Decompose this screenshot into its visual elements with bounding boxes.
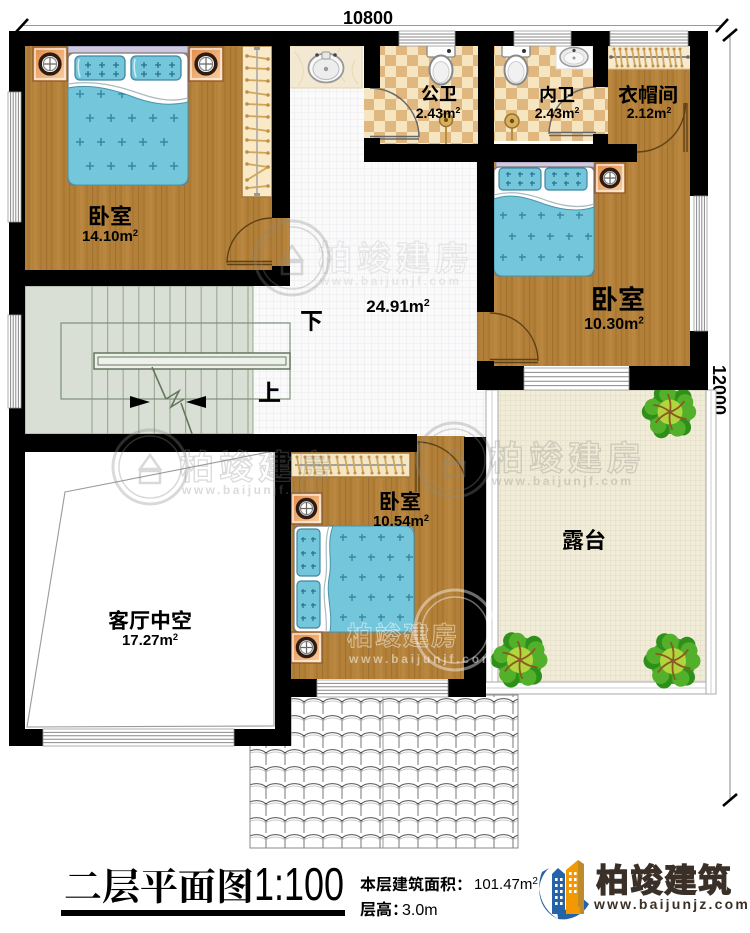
svg-text:10.54m2: 10.54m2 bbox=[373, 513, 429, 530]
svg-text:24.91m2: 24.91m2 bbox=[366, 297, 430, 316]
svg-text:14.10m2: 14.10m2 bbox=[82, 228, 138, 245]
svg-text:101.47m2: 101.47m2 bbox=[474, 876, 538, 893]
svg-text:www.baijunjz.com: www.baijunjz.com bbox=[593, 896, 750, 912]
svg-text:www.baijunjf.com: www.baijunjf.com bbox=[181, 483, 324, 497]
svg-text:www.baijunjf.com: www.baijunjf.com bbox=[319, 274, 462, 288]
svg-text:17.27m2: 17.27m2 bbox=[122, 632, 178, 649]
svg-text:2.43m2: 2.43m2 bbox=[535, 105, 580, 121]
svg-text:2.43m2: 2.43m2 bbox=[416, 105, 461, 121]
svg-text:3.0m: 3.0m bbox=[402, 902, 438, 919]
svg-text:www.baijunjf.com: www.baijunjf.com bbox=[348, 652, 495, 666]
svg-text:1:100: 1:100 bbox=[254, 858, 344, 910]
svg-text:www.baijunjf.com: www.baijunjf.com bbox=[491, 474, 634, 488]
svg-text:10.30m2: 10.30m2 bbox=[584, 315, 644, 333]
svg-text:2.12m2: 2.12m2 bbox=[627, 105, 672, 121]
svg-text:10800: 10800 bbox=[343, 8, 393, 28]
